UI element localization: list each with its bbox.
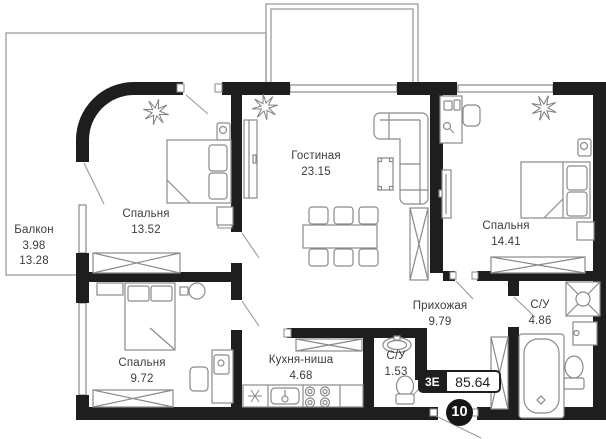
nightstand-symbol [217, 207, 233, 225]
chair-symbol [190, 367, 208, 391]
room-label-bathroom-main: С/У 4.86 [529, 298, 552, 329]
apartment-number-marker[interactable]: 10 [446, 399, 473, 426]
apartment-type-badge[interactable]: 3Е 85.64 [418, 370, 501, 393]
living-room-furniture [244, 113, 428, 280]
room-label-hallway: Прихожая 9.79 [413, 299, 468, 330]
floor-lamp-symbol [180, 283, 205, 299]
bedroom-top-left-furniture [93, 123, 233, 273]
kitchen-cabinet-symbol [296, 339, 362, 351]
pillow-symbol [567, 192, 587, 216]
cabinet-symbol [573, 322, 597, 345]
toilet-symbol [564, 356, 584, 389]
tv-cabinet-symbol [244, 120, 257, 198]
pillow-symbol [209, 145, 227, 171]
total-area-label: 85.64 [447, 370, 501, 393]
shower-symbol [566, 282, 600, 316]
room-label-bedroom-right: Спальня 14.41 [482, 219, 529, 250]
layout-type-label: 3Е [418, 370, 447, 393]
room-label-kitchen-niche: Кухня-ниша 4.68 [269, 353, 334, 384]
toilet-symbol [396, 376, 414, 404]
chair-symbol [463, 105, 480, 126]
room-label-bedroom-bottom-left: Спальня 9.72 [118, 356, 165, 387]
pillow-symbol [567, 166, 587, 190]
wardrobe-symbol [93, 253, 180, 273]
pillow-symbol [209, 173, 227, 199]
dining-set-symbol [303, 207, 378, 266]
nightstand-symbol [577, 222, 594, 240]
bathtub-symbol [519, 334, 564, 418]
wardrobe-symbol [93, 390, 173, 407]
floor-plan: Балкон 3.98 13.28 Спальня 13.52 Гостиная… [0, 0, 606, 439]
coffee-table-symbol [378, 158, 393, 190]
terrace-outline [266, 4, 418, 82]
shelf-symbol [97, 283, 123, 295]
pillow-symbol [151, 286, 172, 301]
room-label-living-room: Гостиная 23.15 [291, 149, 340, 180]
room-label-bathroom-small: С/У 1.53 [385, 349, 408, 380]
wardrobe-symbol [491, 257, 585, 273]
sink-symbol [271, 388, 299, 404]
storage-cabinet-symbol [410, 208, 428, 280]
bedroom-bottom-left-furniture [93, 283, 233, 407]
dining-table-symbol [303, 225, 377, 248]
pillow-symbol [128, 286, 149, 301]
room-label-bedroom-top-left: Спальня 13.52 [122, 207, 169, 238]
chandelier-icon [141, 91, 561, 127]
room-label-balcony: Балкон 3.98 13.28 [14, 223, 53, 270]
